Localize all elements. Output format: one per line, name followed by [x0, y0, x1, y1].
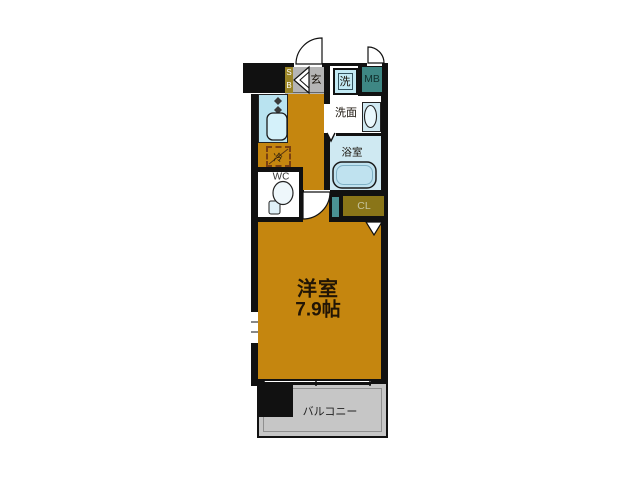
- floor-plan: 玄 SB 洗 MB 洗面 浴室 CL WC 冷 洋室 7.9帖 バルコニー: [0, 0, 640, 480]
- entrance-step-line: [293, 92, 324, 93]
- bathroom-label: 浴室: [342, 145, 363, 160]
- shoe-box-label: SB: [285, 66, 293, 92]
- main-room-size-label: 7.9帖: [295, 295, 340, 322]
- pipe-space: [332, 197, 339, 217]
- entrance-label: 玄: [311, 71, 322, 87]
- meter-box-door-opening: [367, 63, 382, 66]
- washbasin-counter: [362, 102, 381, 132]
- meter-box-door-swing-icon: [368, 47, 384, 63]
- wall-wc-bottom: [251, 217, 303, 222]
- entrance-door-swing-icon: [296, 38, 322, 64]
- left-window: [251, 312, 258, 343]
- washroom-label: 洗面: [335, 104, 357, 120]
- wall-wc-right: [299, 167, 303, 222]
- wall-closet-bottom: [329, 218, 388, 222]
- wc-label: WC: [273, 172, 290, 183]
- kitchen-counter: [258, 94, 288, 143]
- balcony-wall-block: [259, 384, 293, 417]
- refrigerator-label: 冷: [273, 150, 283, 164]
- closet-label: CL: [357, 200, 370, 212]
- wall-right: [381, 63, 388, 386]
- room-door-opening: [304, 190, 330, 194]
- wall-top-left-block: [243, 63, 285, 93]
- entrance-door-opening: [294, 63, 322, 67]
- meter-box-label: MB: [364, 73, 380, 85]
- balcony-label: バルコニー: [303, 403, 358, 419]
- washing-machine-label: 洗: [340, 73, 351, 89]
